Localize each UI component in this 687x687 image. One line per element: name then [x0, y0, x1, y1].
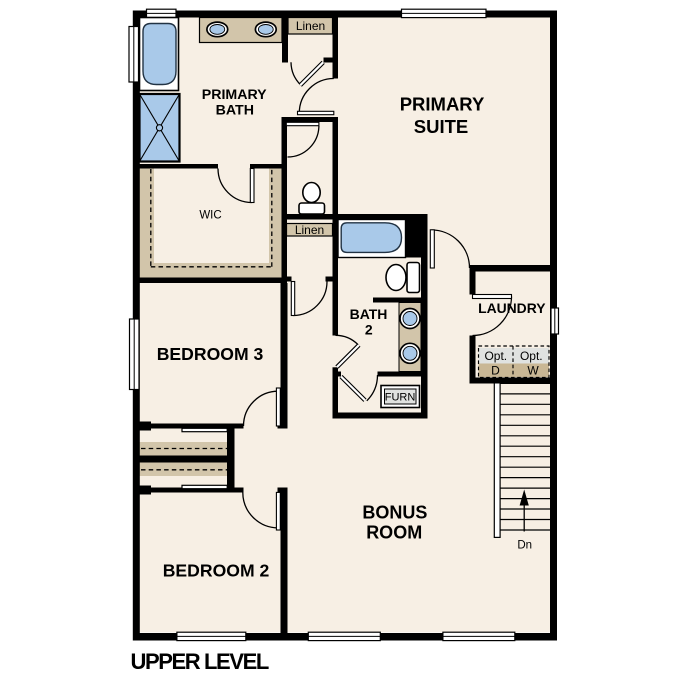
- svg-text:BATH: BATH: [216, 103, 254, 119]
- svg-text:SUITE: SUITE: [414, 116, 468, 137]
- svg-text:BONUS: BONUS: [362, 502, 427, 522]
- svg-text:Linen: Linen: [295, 223, 324, 237]
- svg-text:W: W: [527, 363, 539, 377]
- svg-text:Linen: Linen: [296, 19, 325, 33]
- svg-text:WIC: WIC: [199, 209, 221, 221]
- svg-text:BEDROOM 2: BEDROOM 2: [163, 560, 270, 580]
- svg-text:UPPER LEVEL: UPPER LEVEL: [131, 649, 269, 674]
- svg-text:LAUNDRY: LAUNDRY: [478, 300, 546, 316]
- svg-text:ROOM: ROOM: [366, 523, 422, 543]
- svg-text:Dn: Dn: [517, 540, 532, 552]
- svg-text:FURN: FURN: [385, 392, 416, 404]
- svg-text:D: D: [491, 363, 500, 377]
- svg-text:2: 2: [365, 321, 373, 337]
- svg-text:BATH: BATH: [350, 306, 388, 322]
- svg-text:BEDROOM 3: BEDROOM 3: [157, 344, 264, 364]
- svg-text:PRIMARY: PRIMARY: [202, 87, 267, 103]
- svg-text:Opt.: Opt.: [484, 349, 507, 363]
- svg-text:PRIMARY: PRIMARY: [400, 93, 485, 114]
- svg-text:Opt.: Opt.: [520, 349, 543, 363]
